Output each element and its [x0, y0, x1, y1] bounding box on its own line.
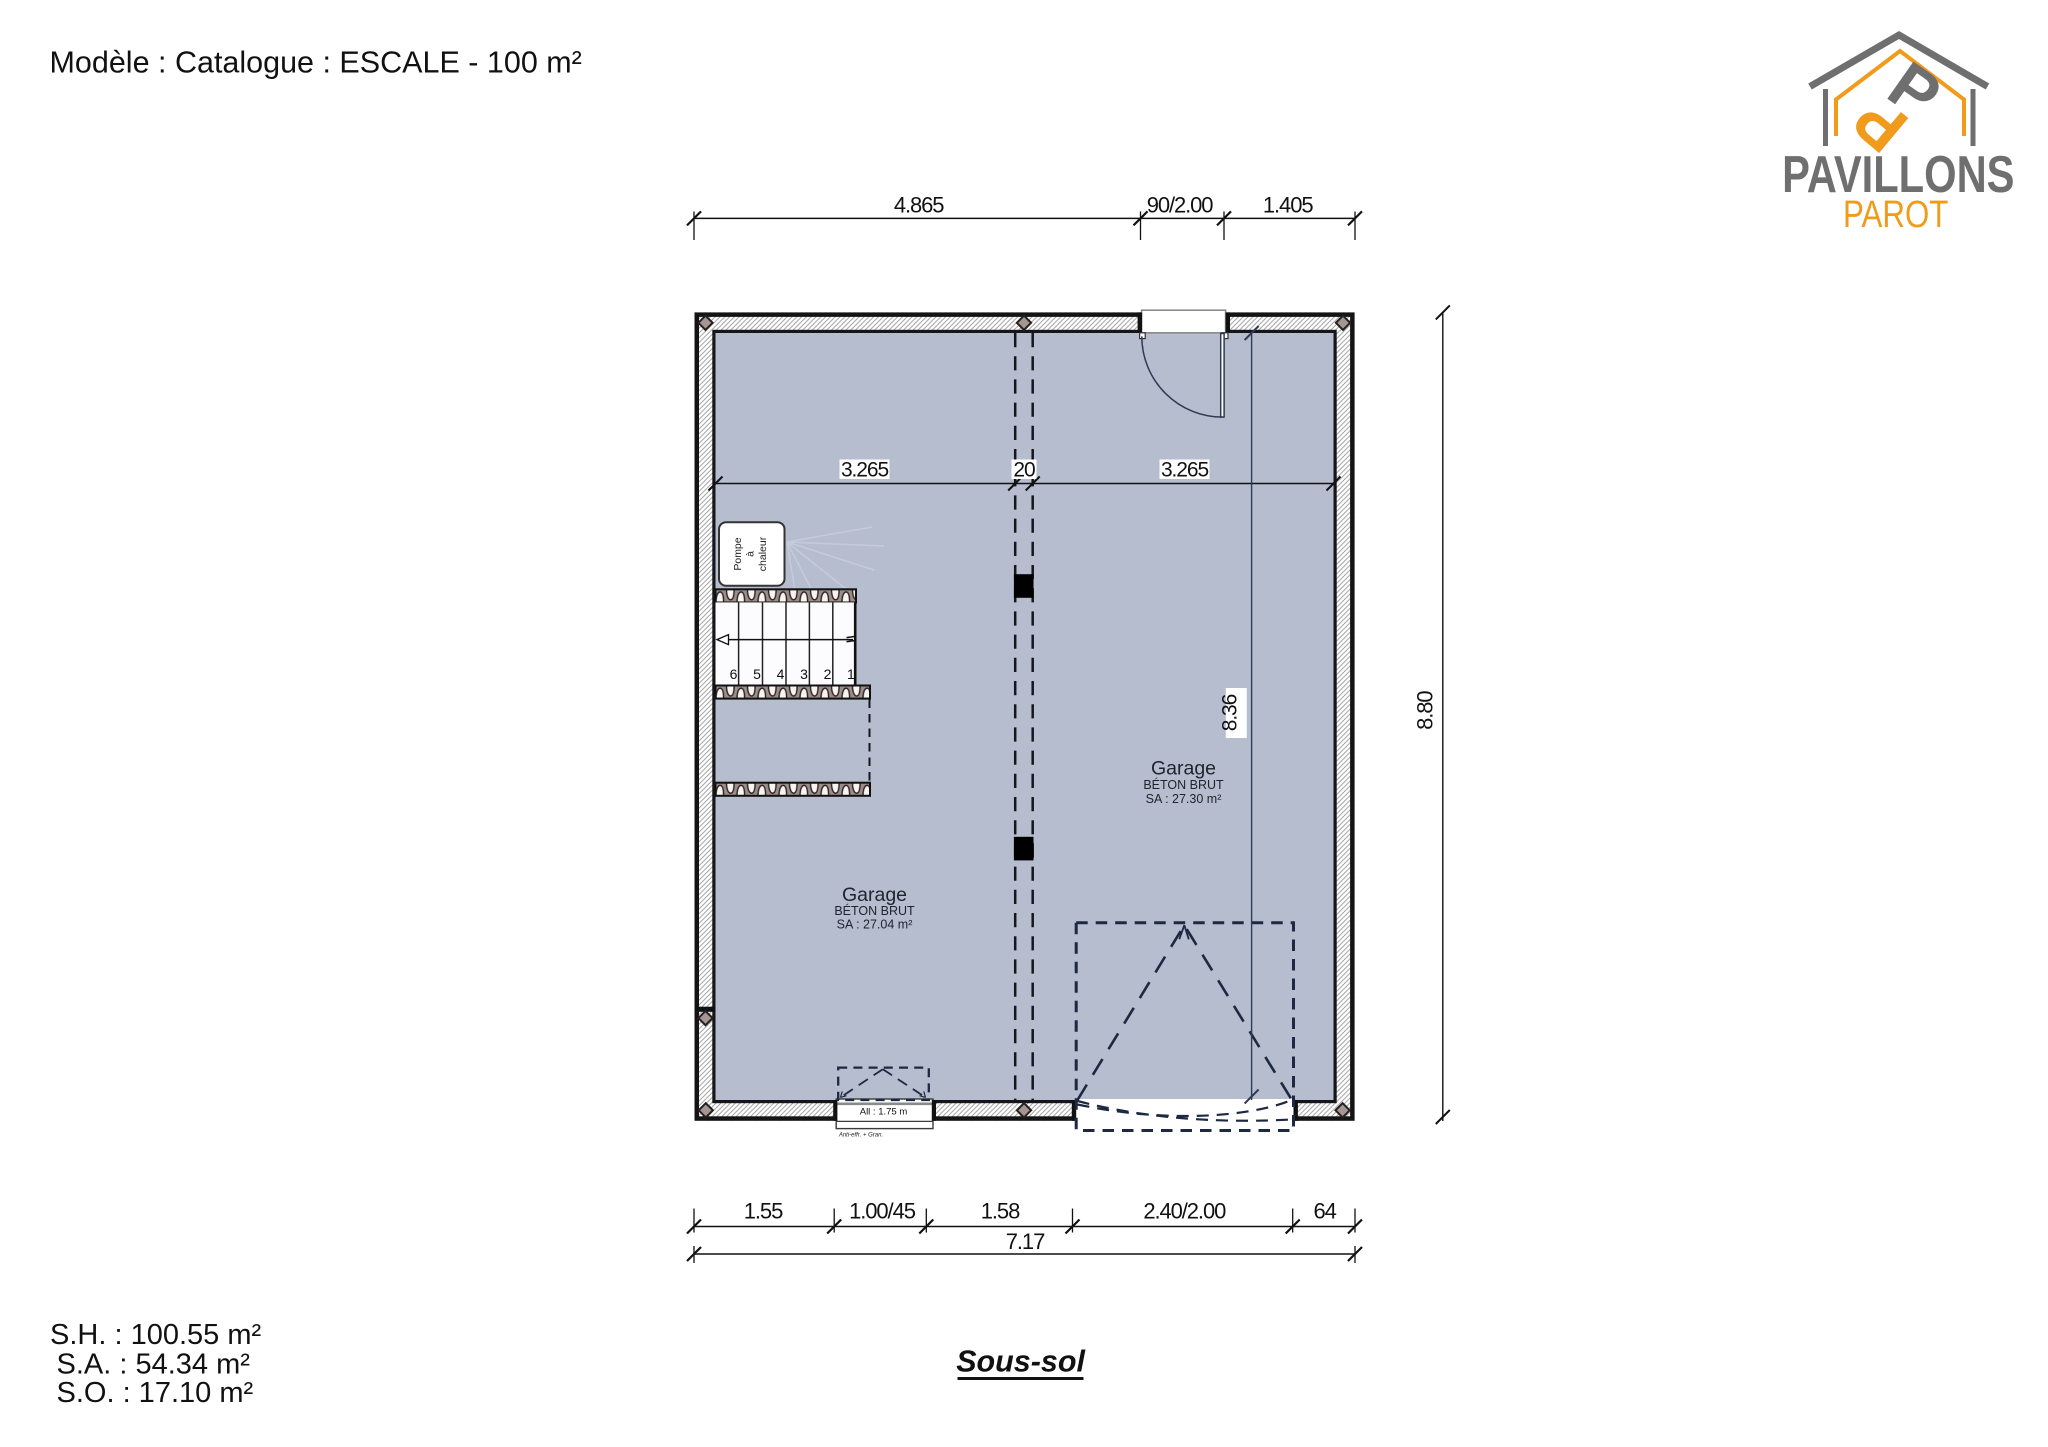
svg-text:Pompe: Pompe: [732, 537, 744, 570]
svg-text:4.865: 4.865: [894, 193, 944, 218]
svg-text:BÉTON BRUT: BÉTON BRUT: [834, 903, 915, 918]
svg-text:3.265: 3.265: [1161, 459, 1208, 482]
svg-text:2: 2: [824, 666, 832, 682]
svg-text:4: 4: [777, 666, 785, 682]
svg-text:All : 1.75 m: All : 1.75 m: [860, 1107, 908, 1118]
svg-text:3: 3: [800, 666, 808, 682]
svg-text:1: 1: [847, 666, 855, 682]
svg-text:20: 20: [1013, 459, 1035, 482]
svg-text:Anti-effr. + Gran.: Anti-effr. + Gran.: [838, 1133, 883, 1139]
svg-text:Sous-sol: Sous-sol: [956, 1345, 1085, 1379]
svg-text:SA : 27.30 m²: SA : 27.30 m²: [1146, 792, 1222, 806]
svg-text:S.O. : 17.10 m²: S.O. : 17.10 m²: [57, 1377, 254, 1409]
svg-text:7.17: 7.17: [1006, 1229, 1045, 1254]
svg-text:Garage: Garage: [1151, 758, 1216, 780]
svg-text:1.58: 1.58: [981, 1199, 1020, 1224]
svg-text:8.36: 8.36: [1218, 694, 1241, 731]
svg-text:90/2.00: 90/2.00: [1147, 193, 1214, 218]
svg-text:1.55: 1.55: [744, 1199, 783, 1224]
svg-text:2.40/2.00: 2.40/2.00: [1143, 1199, 1226, 1224]
svg-text:1.00/45: 1.00/45: [849, 1199, 916, 1224]
svg-text:Garage: Garage: [842, 884, 907, 906]
svg-text:chaleur: chaleur: [757, 536, 769, 571]
svg-text:8.80: 8.80: [1412, 691, 1437, 730]
svg-text:1.405: 1.405: [1263, 193, 1313, 218]
svg-text:3.265: 3.265: [841, 459, 888, 482]
svg-text:Modèle : Catalogue : ESCALE -: Modèle : Catalogue : ESCALE - 100 m²: [50, 46, 582, 80]
svg-text:S.A. : 54.34 m²: S.A. : 54.34 m²: [57, 1349, 251, 1381]
svg-text:à: à: [745, 551, 757, 557]
svg-text:S.H. : 100.55 m²: S.H. : 100.55 m²: [50, 1319, 261, 1351]
svg-text:BÉTON BRUT: BÉTON BRUT: [1143, 777, 1224, 792]
svg-text:6: 6: [730, 666, 738, 682]
svg-text:PAROT: PAROT: [1843, 194, 1948, 236]
svg-text:5: 5: [753, 666, 761, 682]
svg-text:64: 64: [1314, 1199, 1337, 1224]
svg-text:SA : 27.04 m²: SA : 27.04 m²: [837, 918, 913, 932]
